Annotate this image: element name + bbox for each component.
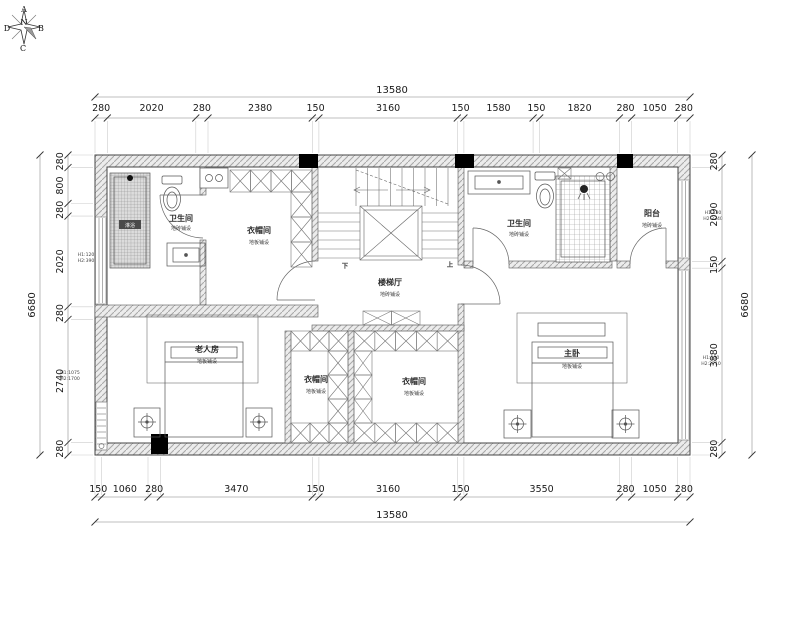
window-right (679, 270, 690, 440)
dimension-total: 6680 (27, 292, 38, 317)
toilet-icon (535, 172, 555, 208)
vanity-sink (167, 243, 205, 266)
lamp-icon (617, 415, 635, 433)
dimension-value: 1050 (643, 484, 667, 495)
room-finish-balcony: 地砖铺设 (642, 222, 662, 229)
compass-letter-b: B (38, 24, 44, 33)
dimension-value: 280 (92, 103, 110, 114)
dresser (538, 323, 605, 336)
cloakroom-bottom-left (291, 331, 348, 443)
room-label-cloak-top: 衣帽间 (247, 225, 271, 235)
column-icon (617, 154, 633, 168)
wardrobe-row (291, 331, 348, 351)
annotation-left-upper: H2:390 (78, 258, 95, 264)
dimension-value: 280 (616, 103, 634, 114)
dimension-value: 280 (55, 152, 66, 170)
dimension-value: 150 (89, 484, 107, 495)
dimension-value: 2090 (709, 202, 720, 226)
dimension-value: 280 (145, 484, 163, 495)
stair-down-label: 下 (342, 263, 348, 270)
annotation-left-upper: H1:120 (78, 252, 95, 258)
compass-letter-d: D (4, 24, 10, 33)
master-bedroom (504, 313, 639, 438)
stair-left-treads (318, 213, 360, 258)
dimension-value: 150 (307, 484, 325, 495)
room-finish-bath-left: 地砖铺设 (171, 225, 191, 232)
elder-room (134, 315, 272, 437)
dimension-value: 150 (527, 103, 545, 114)
dimension-value: 2020 (55, 249, 66, 273)
dimension-value: 3470 (224, 484, 248, 495)
stair-direction-arrows (354, 187, 430, 193)
wardrobe-column (328, 351, 348, 423)
wardrobe-column (291, 192, 312, 267)
room-finish-elder: 地板铺设 (197, 358, 217, 365)
dimension-total: 13580 (376, 510, 408, 521)
room-label-balcony: 阳台 (644, 208, 660, 218)
bed-backdrop (517, 313, 627, 383)
compass-letter-n: N (21, 18, 28, 27)
room-label-cloak-bl: 衣帽间 (304, 374, 328, 384)
room-label-cloak-br: 衣帽间 (402, 376, 426, 386)
floor-plan-svg: A B C D N (0, 0, 800, 635)
dimension-value: 2740 (55, 369, 66, 393)
dimension-value: 1820 (567, 103, 591, 114)
stair-up-label: 上 (447, 261, 453, 269)
wardrobe-row (230, 170, 312, 192)
dimension-total: 6680 (740, 292, 751, 317)
bed (165, 342, 243, 437)
room-label-stair-hall: 楼梯厅 (378, 277, 402, 287)
lamp-icon (509, 415, 527, 433)
room-finish-cloak-top: 地板铺设 (249, 239, 269, 246)
dimension-value: 3160 (376, 103, 400, 114)
door-master-bedroom (461, 265, 500, 304)
room-finish-bath-right: 地砖铺设 (509, 231, 529, 238)
dimension-value: 150 (709, 256, 720, 274)
dimension-value: 1050 (643, 103, 667, 114)
compass-letter-c: C (20, 44, 26, 53)
floor-plan-page: A B C D N (0, 0, 800, 635)
vanity-sink (468, 171, 530, 194)
dimension-value: 280 (55, 201, 66, 219)
stair-hall: 下 上 (318, 168, 458, 325)
dimension-value: 800 (55, 176, 66, 194)
lamp-icon (250, 413, 268, 431)
window-right-top (679, 180, 690, 258)
dimension-value: 280 (193, 103, 211, 114)
stair-upper-treads (356, 168, 448, 206)
dimension-value: 280 (709, 440, 720, 458)
room-finish-cloak-br: 地板铺设 (404, 390, 424, 397)
wardrobe-row (354, 423, 458, 443)
room-finish-cloak-bl: 地板铺设 (306, 388, 326, 395)
shower-head-icon (580, 185, 588, 193)
dimension-value: 280 (55, 440, 66, 458)
dimension-value: 3550 (530, 484, 554, 495)
dimension-value: 150 (452, 484, 470, 495)
shower-label: 淋浴 (125, 222, 135, 229)
stair-cabinet (363, 311, 420, 325)
wall-counter (200, 168, 228, 188)
compass-north-arrow: A B C D N (4, 5, 44, 53)
dimension-value: 280 (675, 103, 693, 114)
dimension-value: 1580 (486, 103, 510, 114)
wardrobe-column (354, 351, 372, 423)
dimension-value: 150 (452, 103, 470, 114)
wardrobe-row (354, 331, 458, 351)
cloakroom-bottom-right (354, 331, 458, 443)
window-left (96, 217, 107, 304)
wardrobe-row (291, 423, 348, 443)
dimension-value: 2380 (248, 103, 272, 114)
room-label-master: 主卧 (564, 348, 580, 358)
dimension-value: 150 (307, 103, 325, 114)
room-label-elder: 老人房 (194, 344, 219, 354)
dimension-value: 1060 (113, 484, 137, 495)
room-finish-master: 地板铺设 (562, 363, 582, 370)
door-bath-right (473, 228, 509, 264)
dimension-value: 280 (616, 484, 634, 495)
lamp-icon (138, 413, 156, 431)
shower-enclosure (556, 176, 610, 262)
door-balcony (630, 228, 666, 264)
dimension-value: 3160 (376, 484, 400, 495)
dimension-value: 3880 (709, 343, 720, 367)
dimension-value: 280 (675, 484, 693, 495)
dimension-value: 2020 (139, 103, 163, 114)
column-icon (455, 154, 474, 168)
dimension-value: 280 (709, 152, 720, 170)
stair-right-treads (422, 213, 458, 258)
dimension-value: 280 (55, 304, 66, 322)
cloakroom-top (230, 170, 312, 267)
toilet-icon (162, 176, 182, 211)
room-label-bath-left: 卫生间 (169, 213, 193, 223)
column-icon (299, 154, 318, 168)
compass-letter-a: A (20, 5, 27, 14)
bathroom-right (468, 168, 615, 262)
dimension-total: 13580 (376, 85, 408, 96)
radiator (96, 402, 107, 450)
shower-drain-icon (127, 175, 133, 181)
room-label-bath-right: 卫生间 (507, 218, 531, 228)
room-finish-stair-hall: 地砖铺设 (380, 291, 400, 298)
